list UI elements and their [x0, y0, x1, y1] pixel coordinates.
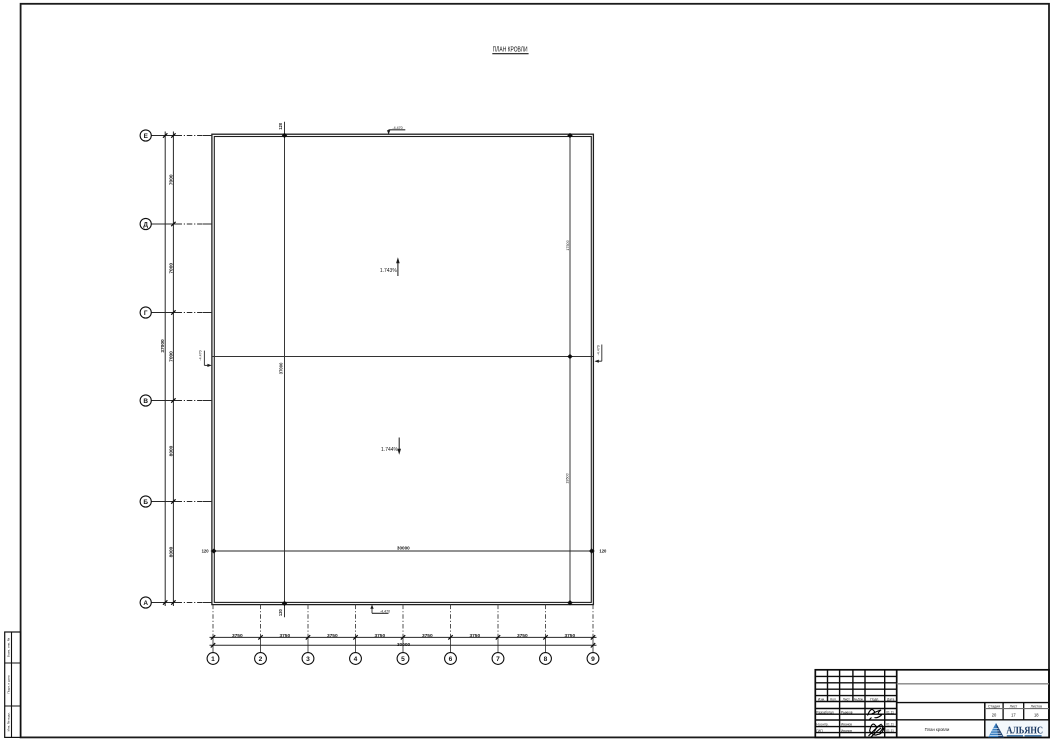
- svg-text:3750: 3750: [327, 633, 338, 639]
- svg-text:Стадия: Стадия: [988, 705, 1000, 709]
- svg-text:-4.470: -4.470: [596, 345, 600, 355]
- svg-text:Лист: Лист: [843, 698, 851, 702]
- svg-text:2: 2: [259, 656, 263, 663]
- svg-text:1.744%: 1.744%: [381, 447, 399, 453]
- svg-text:7: 7: [496, 656, 500, 663]
- svg-text:8000: 8000: [168, 546, 174, 557]
- svg-text:Изм.: Изм.: [818, 698, 825, 702]
- svg-text:3750: 3750: [232, 633, 243, 639]
- svg-text:5: 5: [401, 656, 405, 663]
- svg-text:План кровли: План кровли: [925, 727, 950, 732]
- svg-text:А: А: [143, 600, 148, 607]
- svg-text:3750: 3750: [469, 633, 480, 639]
- svg-text:-4.470: -4.470: [198, 350, 202, 360]
- svg-text:Иванов: Иванов: [841, 729, 852, 733]
- svg-text:3750: 3750: [517, 633, 528, 639]
- svg-text:20: 20: [992, 713, 997, 718]
- svg-text:№Док.: №Док.: [854, 698, 864, 702]
- svg-text:ПЛАН КРОВЛИ: ПЛАН КРОВЛИ: [493, 47, 528, 54]
- svg-text:30000: 30000: [397, 642, 411, 648]
- svg-text:01.11: 01.11: [886, 729, 894, 733]
- svg-text:4: 4: [354, 656, 358, 663]
- svg-text:7000: 7000: [168, 351, 174, 362]
- svg-text:Инв. № подл.: Инв. № подл.: [7, 712, 11, 731]
- svg-text:-4.470: -4.470: [392, 126, 402, 130]
- svg-text:Взам. инв. №: Взам. инв. №: [7, 637, 11, 657]
- svg-text:Подп. и дата: Подп. и дата: [7, 675, 11, 694]
- svg-text:01.11: 01.11: [886, 710, 894, 714]
- svg-text:9: 9: [591, 656, 595, 663]
- svg-text:Иванов: Иванов: [841, 723, 852, 727]
- svg-text:120: 120: [202, 549, 210, 554]
- svg-text:17: 17: [1011, 713, 1016, 718]
- svg-text:8000: 8000: [168, 445, 174, 456]
- svg-text:3750: 3750: [564, 633, 575, 639]
- svg-text:В: В: [143, 398, 148, 405]
- svg-text:Рыжков: Рыжков: [841, 710, 853, 714]
- svg-text:3: 3: [306, 656, 310, 663]
- svg-text:1: 1: [211, 656, 215, 663]
- svg-text:6: 6: [449, 656, 453, 663]
- svg-text:ГИП: ГИП: [816, 729, 823, 733]
- svg-text:18: 18: [1034, 713, 1039, 718]
- svg-text:-4.470: -4.470: [380, 609, 390, 613]
- svg-text:Кол.: Кол.: [830, 698, 837, 702]
- svg-text:8: 8: [544, 656, 548, 663]
- svg-text:3750: 3750: [422, 633, 433, 639]
- svg-text:Подп.: Подп.: [870, 698, 879, 702]
- svg-text:Г: Г: [144, 310, 148, 317]
- svg-text:01.11: 01.11: [886, 723, 894, 727]
- svg-text:17500: 17500: [566, 240, 570, 250]
- svg-text:120: 120: [278, 608, 283, 616]
- svg-text:Е: Е: [144, 133, 149, 140]
- svg-text:Дата: Дата: [887, 698, 894, 702]
- svg-text:Листов: Листов: [1031, 705, 1043, 709]
- svg-text:Разработал: Разработал: [816, 710, 833, 714]
- svg-text:Б: Б: [143, 499, 148, 506]
- svg-text:7000: 7000: [168, 174, 174, 185]
- svg-text:3750: 3750: [374, 633, 385, 639]
- svg-text:120: 120: [599, 549, 607, 554]
- svg-text:Н.контр.: Н.контр.: [816, 723, 828, 727]
- svg-text:30000: 30000: [397, 546, 410, 551]
- svg-text:37000: 37000: [279, 362, 284, 374]
- svg-text:19500: 19500: [566, 473, 570, 483]
- svg-text:Лист: Лист: [1010, 705, 1018, 709]
- svg-text:120: 120: [278, 122, 283, 130]
- svg-text:1.743%: 1.743%: [380, 268, 398, 274]
- svg-text:7000: 7000: [168, 263, 174, 274]
- svg-text:Д: Д: [143, 221, 148, 228]
- svg-text:37000: 37000: [160, 339, 166, 353]
- svg-text:3750: 3750: [279, 633, 290, 639]
